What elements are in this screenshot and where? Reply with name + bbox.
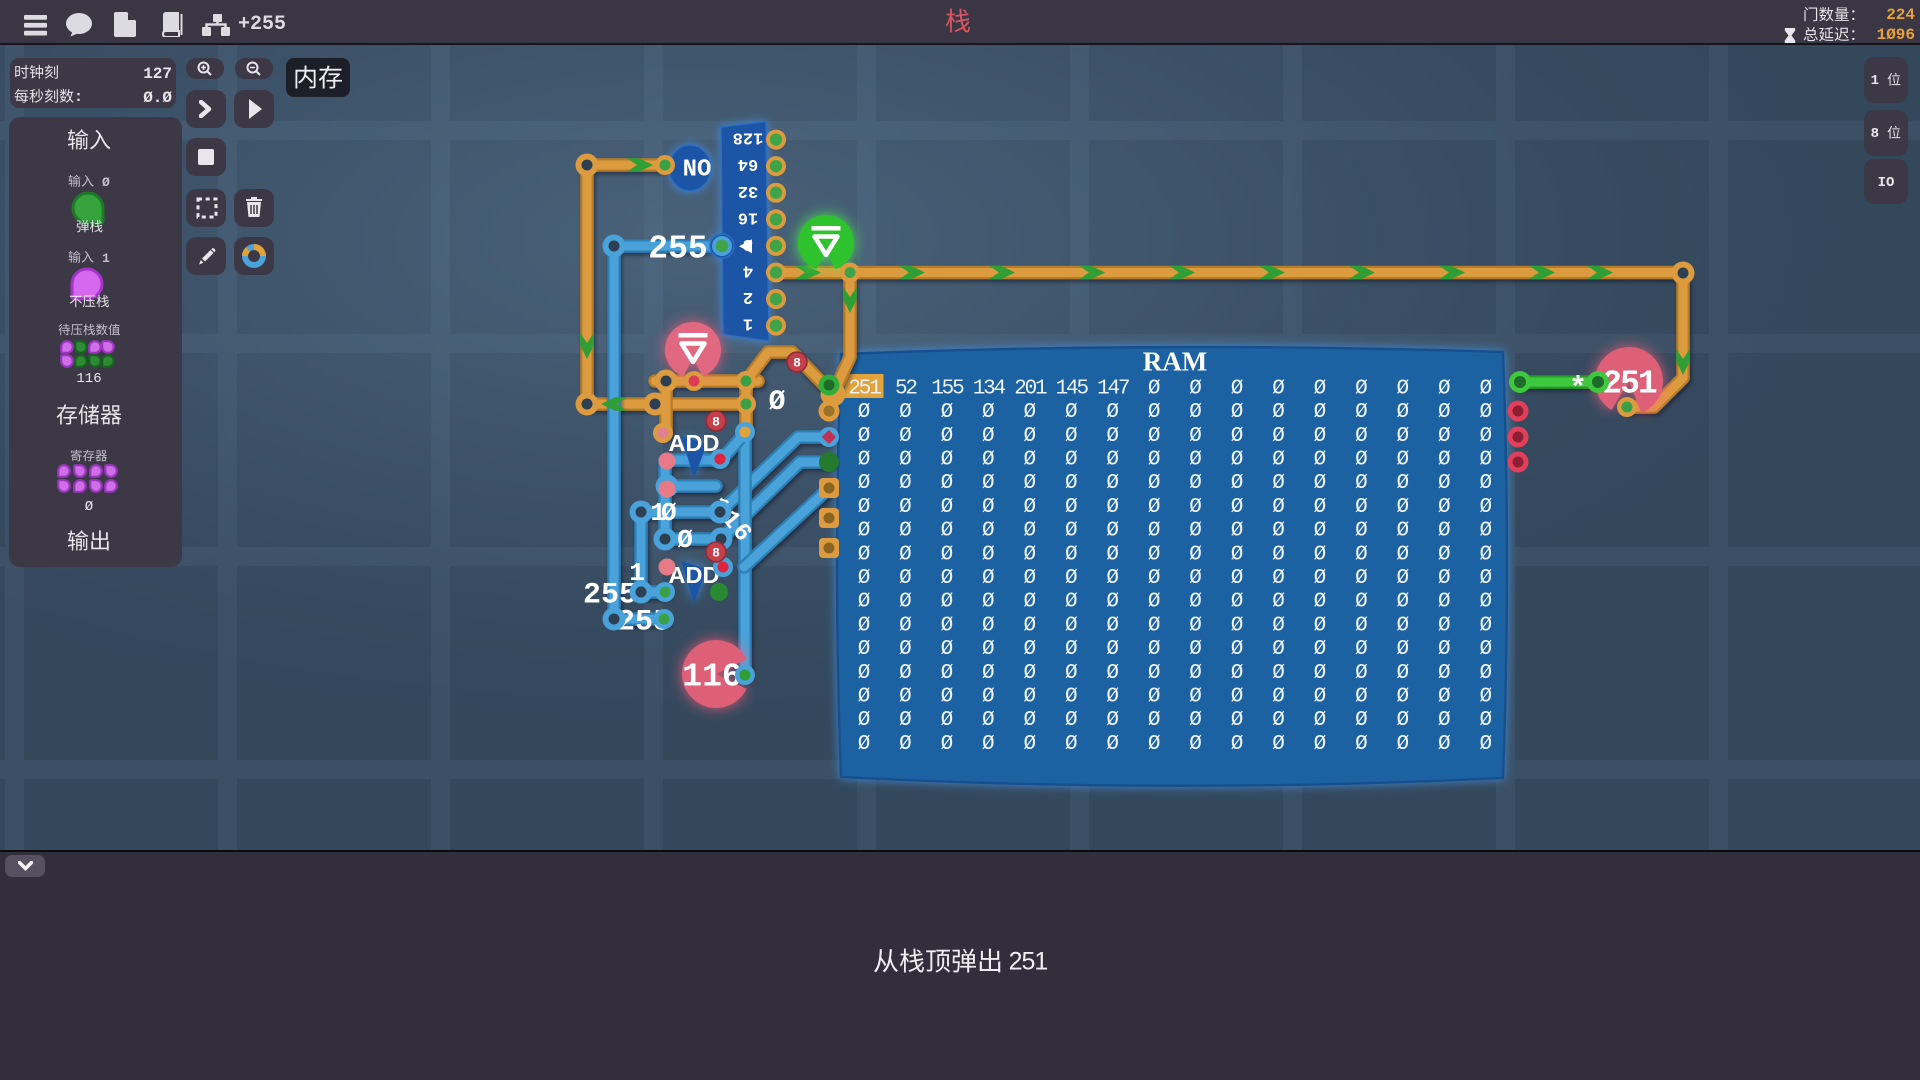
svg-text:1: 1 <box>743 314 753 333</box>
svg-text:Ø: Ø <box>1314 377 1327 400</box>
svg-text:16: 16 <box>738 207 758 226</box>
svg-text:251: 251 <box>848 377 881 400</box>
svg-text:RAM: RAM <box>1143 346 1207 376</box>
svg-text:147: 147 <box>1097 377 1129 400</box>
svg-text:ADD: ADD <box>669 430 720 456</box>
svg-text:Ø: Ø <box>677 525 693 555</box>
svg-text:8: 8 <box>712 415 720 430</box>
svg-text:134: 134 <box>973 377 1006 400</box>
svg-text:52: 52 <box>895 377 917 400</box>
svg-text:Ø: Ø <box>1438 377 1451 400</box>
svg-text:255: 255 <box>648 231 707 268</box>
svg-text:NO: NO <box>683 156 712 183</box>
svg-text:Ø: Ø <box>1479 377 1492 400</box>
svg-text:Ø: Ø <box>1231 377 1244 400</box>
svg-text:2: 2 <box>743 287 753 306</box>
svg-text:8: 8 <box>712 546 720 561</box>
svg-text:155: 155 <box>931 377 964 400</box>
svg-text:*: * <box>1569 373 1587 407</box>
svg-text:64: 64 <box>738 154 758 173</box>
svg-text:Ø: Ø <box>1148 377 1161 400</box>
svg-text:Ø: Ø <box>1272 377 1285 400</box>
svg-text:116: 116 <box>682 659 741 696</box>
svg-text:201: 201 <box>1014 377 1047 400</box>
svg-text:Ø: Ø <box>769 387 786 418</box>
svg-text:128: 128 <box>733 128 764 147</box>
svg-text:Ø: Ø <box>1355 377 1368 400</box>
svg-text:4: 4 <box>743 261 753 280</box>
svg-text:Ø: Ø <box>1397 377 1410 400</box>
svg-text:145: 145 <box>1056 377 1089 400</box>
svg-text:ADD: ADD <box>669 562 720 588</box>
svg-text:Ø: Ø <box>1189 377 1202 400</box>
svg-text:251: 251 <box>1602 366 1657 403</box>
svg-text:8: 8 <box>793 356 801 371</box>
svg-text:32: 32 <box>738 181 758 200</box>
